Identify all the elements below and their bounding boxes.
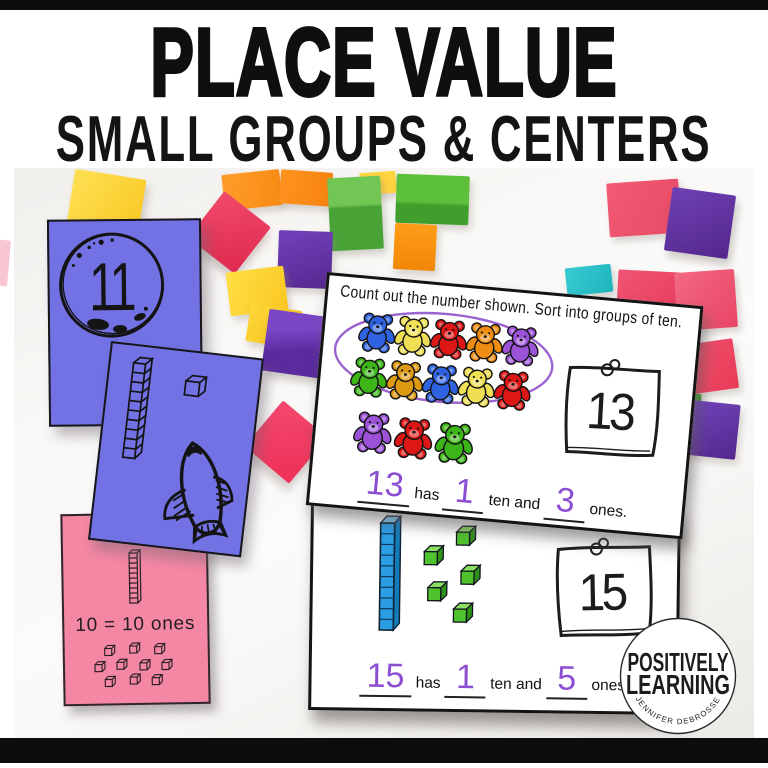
svg-text:13: 13	[585, 381, 636, 442]
svg-text:10 = 10 ones: 10 = 10 ones	[75, 613, 195, 636]
svg-text:11: 11	[89, 250, 135, 325]
